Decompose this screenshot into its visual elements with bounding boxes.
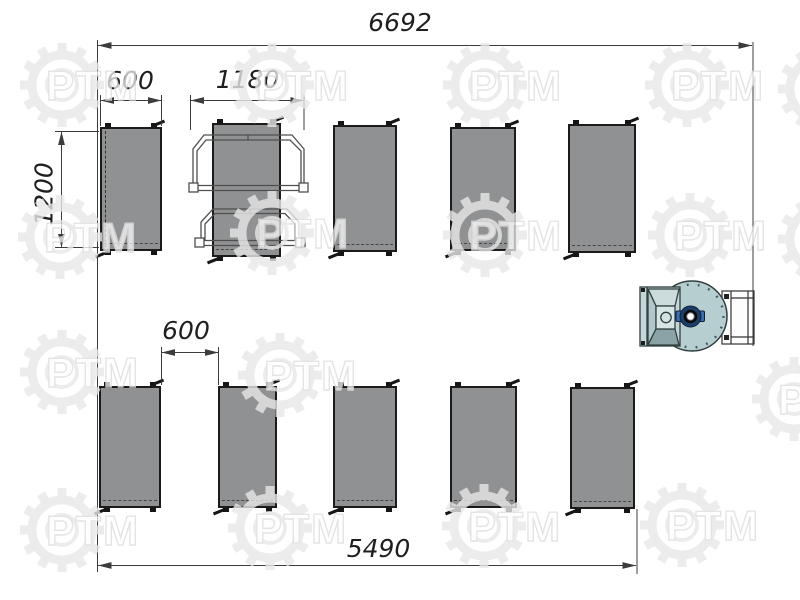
corner-clip [505,251,511,255]
ptm-logo-watermark: РТМ [752,352,800,451]
mount-hook [387,379,400,387]
equipment-unit [450,127,516,251]
dimension-label-unit-depth: 1200 [32,152,58,237]
equipment-unit [218,386,277,508]
edge-line [574,501,631,502]
ptm-logo-watermark: РТМ [778,42,800,141]
corner-clip [455,123,461,127]
fan-impeller-disc [657,281,727,351]
edge-line [104,243,158,244]
dimension-label-bottom-span: 5490 [336,536,421,562]
corner-clip [386,252,392,256]
ptm-logo-watermark: РТМ [778,192,800,291]
fan-mount-bracket [722,291,754,344]
corner-clip [573,120,579,124]
equipment-unit [99,386,161,508]
watermark-text: РТМ [46,507,140,554]
exhaust-fan [630,273,765,363]
gear-icon [20,330,104,414]
corner-clip [575,383,581,387]
edge-line [103,500,157,501]
equipment-unit [333,386,397,508]
corner-clip [151,251,157,255]
gear-icon [640,483,724,567]
mount-hook [267,379,280,387]
mount-hook [506,120,519,128]
gear-icon [20,488,104,572]
equipment-unit [570,387,635,509]
corner-clip [223,382,229,386]
corner-clip [217,119,223,123]
corner-clip [338,382,344,386]
watermark-text: РТМ [666,502,760,549]
gear-icon [645,43,729,127]
mount-hook [625,380,638,388]
mount-hook [626,117,639,125]
gear-icon [20,43,104,127]
dimension-label-row-gap: 600 [156,318,216,344]
equipment-unit [100,127,162,251]
technical-drawing: 6692 600 1180 1200 600 5490 [0,0,800,600]
corner-clip [270,257,276,261]
equipment-unit [568,124,636,253]
gear-icon [778,197,800,281]
equipment-unit [450,386,517,508]
dimension-label-trolley-width: 1180 [205,67,290,93]
edge-line [454,243,512,244]
ptm-logo-watermark: РТМ [648,188,798,287]
watermark-text: РТМ [778,376,800,423]
mount-hook [271,116,284,124]
edge-line [337,500,393,501]
gear-icon [443,43,527,127]
mount-hook [151,379,164,387]
gear-icon [778,47,800,131]
mount-hook [387,118,400,126]
watermark-text: РТМ [468,503,562,550]
gear-icon [752,357,800,441]
edge-line [337,244,393,245]
corner-clip [624,509,630,513]
edge-line [572,245,632,246]
trolley-unit [212,123,281,257]
fan-housing [640,287,680,346]
corner-clip [386,508,392,512]
corner-clip [506,508,512,512]
housing-port-circle [661,312,671,322]
watermark-text: РТМ [674,212,768,259]
ptm-logo-watermark: РТМ [645,38,795,137]
gear-icon [648,193,732,277]
corner-clip [266,508,272,512]
center-line [105,131,106,247]
corner-clip [150,508,156,512]
corner-clip [105,123,111,127]
mount-hook [507,379,520,387]
watermark-text: РТМ [469,62,563,109]
edge-line [454,500,513,501]
watermark-text: РТМ [671,62,765,109]
corner-clip [625,253,631,257]
dimension-label-unit-width: 600 [99,68,161,94]
dimension-label-overall-width: 6692 [352,10,448,36]
ptm-logo-watermark: РТМ [640,478,790,577]
corner-clip [338,121,344,125]
edge-line [222,500,273,501]
fan-hub [676,306,705,327]
mount-hook [152,120,165,128]
corner-clip [455,382,461,386]
equipment-unit [333,125,397,252]
edge-line [216,249,277,250]
corner-clip [104,382,110,386]
